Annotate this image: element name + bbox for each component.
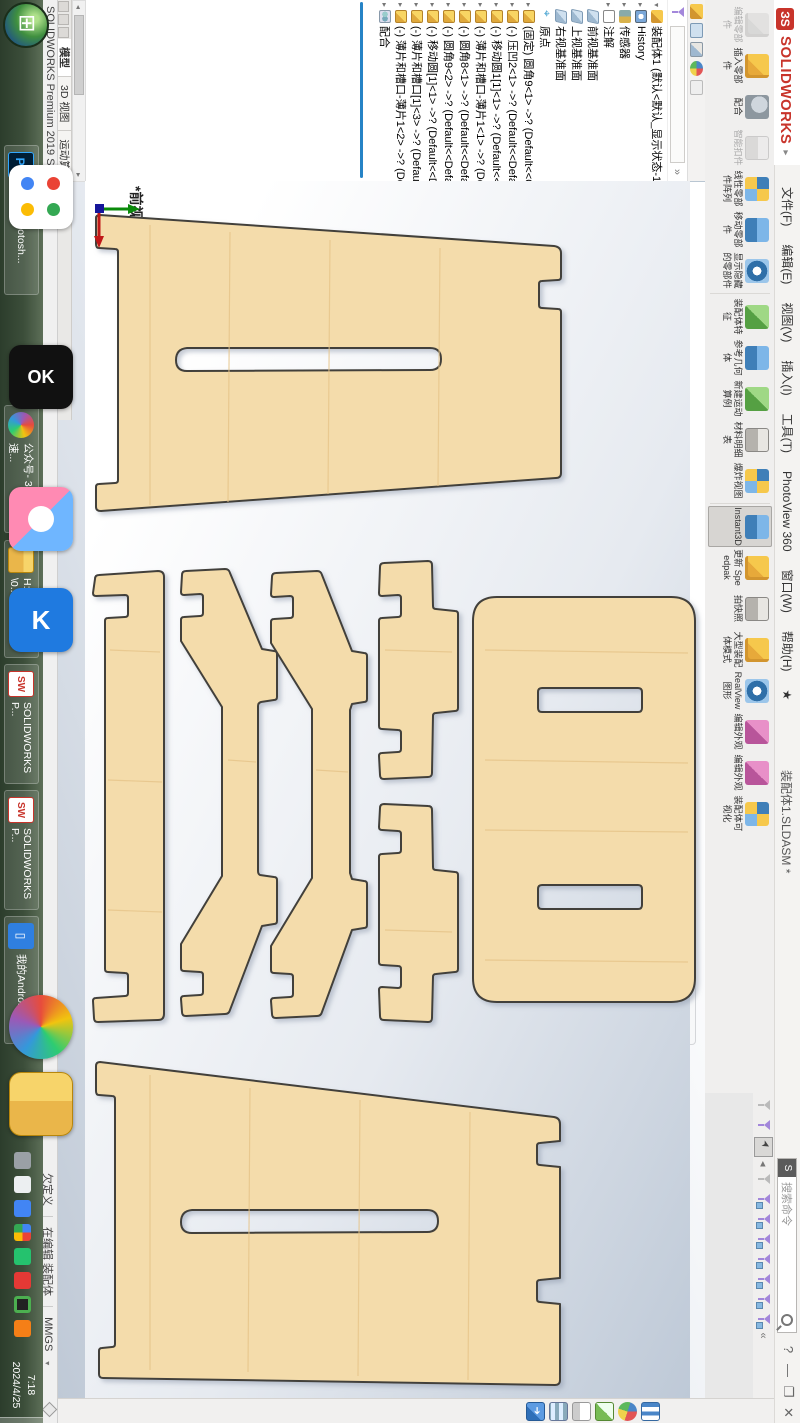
rollback-bar[interactable]	[360, 2, 363, 178]
solidworks-logo[interactable]: ЗS SOLIDWORKS ▸	[774, 0, 800, 165]
edit-appearance-viewport-icon[interactable]	[674, 890, 692, 910]
edit-appearance-button[interactable]: 编辑外观	[708, 711, 772, 752]
units-caret-icon[interactable]: ▾	[44, 1361, 53, 1365]
filter-collapse-icon[interactable]: «	[758, 1331, 770, 1341]
menu-view[interactable]: 视图(V)	[774, 293, 800, 351]
scroll-right-icon[interactable]: ▸	[75, 169, 84, 181]
toolbar-separator	[710, 503, 770, 504]
apply-scene-icon[interactable]	[674, 915, 692, 935]
status-tag-icon[interactable]	[42, 1402, 58, 1418]
tree-item-component[interactable]: ▸(-) 移动圆[1]<1> ->? (Default<<Def	[425, 0, 441, 181]
update-speedpak-button[interactable]: 更新 Speedpak	[708, 547, 772, 588]
reference-geometry-button[interactable]: 参考几何体	[708, 337, 772, 378]
clock-time: 7:18	[23, 1352, 38, 1418]
tray-sogou-icon[interactable]	[14, 1200, 31, 1217]
edit-appearance-icon	[745, 720, 769, 744]
tree-filter-input[interactable]	[670, 26, 685, 163]
menu-help[interactable]: 帮助(H)	[774, 622, 800, 681]
menu-photoview[interactable]: PhotoView 360	[774, 462, 800, 561]
assembly-visualization-icon	[745, 802, 769, 826]
component-icon	[411, 10, 423, 23]
taskbar-button-solidworks-1[interactable]: SW SOLIDWORKS P...	[4, 664, 39, 784]
close-button[interactable]: ✕	[774, 1402, 800, 1423]
filter-faces-icon[interactable]	[755, 1231, 772, 1249]
tray-green-icon[interactable]	[14, 1248, 31, 1265]
realview-graphics-icon	[745, 679, 769, 703]
edit-component-button[interactable]: 编辑零部件	[708, 4, 772, 45]
task-pane	[58, 1398, 774, 1423]
update-speedpak-icon	[745, 556, 769, 580]
zoom-to-fit-icon[interactable]	[674, 654, 692, 674]
feature-tree: ▾装配体1 (默认<默认_显示状态-1>) ▸History ▸传感器 ▸注解 …	[377, 0, 667, 181]
solidworks-app-icon: SW	[9, 671, 35, 697]
plane-icon	[555, 9, 567, 25]
selection-filter-toolbar: ◂ «	[753, 1093, 774, 1423]
dynamic-annotation-icon[interactable]	[674, 754, 692, 774]
dock-app-icon-k[interactable]: K	[9, 588, 73, 652]
feature-manager-panel: » ▾装配体1 (默认<默认_显示状态-1>) ▸History ▸传感器 ▸注…	[58, 0, 705, 182]
splitter-handle[interactable]	[58, 27, 69, 38]
show-hidden-components-button[interactable]: 显示隐藏的零部件	[708, 250, 772, 291]
select-cursor-button[interactable]	[754, 1137, 773, 1157]
filter-edges-icon[interactable]	[755, 1211, 772, 1229]
featuremanager-tree-tab-icon[interactable]	[690, 4, 703, 19]
tray-red-icon[interactable]	[14, 1272, 31, 1289]
plane-icon	[571, 9, 583, 25]
appearances-scenes-icon[interactable]	[618, 1402, 637, 1421]
reference-geometry-icon	[745, 346, 769, 370]
tray-files-icon[interactable]	[14, 1224, 31, 1241]
annotations-icon	[603, 10, 615, 23]
edit-component-icon	[745, 13, 769, 37]
window-controls: ? — ❐ ✕	[774, 1339, 800, 1423]
heads-up-view-toolbar: ▾ ▾ ▾ ▾ ▾ ▾	[670, 645, 696, 1045]
filter-solid-icon[interactable]	[755, 1271, 772, 1289]
filter-plane-icon[interactable]	[755, 1311, 772, 1329]
tree-item-history[interactable]: ▸History	[633, 0, 649, 181]
move-component-button[interactable]: 移动零部件	[708, 209, 772, 250]
splitter-handle[interactable]	[58, 1, 69, 12]
tree-item-sensors[interactable]: ▸传感器	[617, 0, 633, 181]
tab-3d-views[interactable]: 3D 视图	[57, 77, 71, 131]
document-title: 装配体1.SLDASM *	[778, 770, 795, 873]
edit-appearance-icon	[745, 761, 769, 785]
tree-item-component[interactable]: ▸(-) 圆角8<1> ->? (Default<<Defa	[457, 0, 473, 181]
tree-item-mates[interactable]: ▸配合	[377, 0, 393, 181]
menu-collapse-icon[interactable]: ▸	[780, 150, 791, 155]
start-button[interactable]	[3, 2, 49, 48]
realview-graphics-button[interactable]: RealView 图形	[708, 670, 772, 711]
system-tray	[14, 1152, 31, 1337]
mates-icon	[379, 10, 391, 23]
instant3d-icon	[745, 515, 769, 539]
help-button[interactable]: ?	[774, 1339, 800, 1360]
filter-vertices-icon[interactable]	[755, 1191, 772, 1209]
filter-surface-icon[interactable]	[755, 1251, 772, 1269]
linear-pattern-icon	[745, 177, 769, 201]
dock-app-icon-folder[interactable]	[9, 1072, 73, 1136]
search-icon[interactable]	[781, 1314, 793, 1326]
hide-show-items-icon[interactable]	[674, 856, 692, 876]
property-manager-tab-icon[interactable]	[690, 23, 703, 38]
previous-view-icon[interactable]	[674, 704, 692, 724]
view-settings-icon[interactable]	[674, 949, 692, 969]
phone-icon	[9, 923, 35, 949]
tree-item-component[interactable]: ▸(-) 圆角9<2> ->? (Default<<Defa	[441, 0, 457, 181]
tree-item-front-plane[interactable]: 前视基准面	[585, 0, 601, 181]
tree-horizontal-scrollbar[interactable]: ◂ ▸	[72, 0, 86, 182]
tree-item-origin[interactable]: 原点	[537, 0, 553, 181]
scrollbar-thumb[interactable]	[74, 15, 84, 95]
filter-toggle-icon[interactable]	[755, 1097, 772, 1115]
insert-components-icon	[745, 54, 769, 78]
take-snapshot-icon	[745, 597, 769, 621]
origin-icon	[539, 10, 551, 23]
menu-file[interactable]: 文件(F)	[774, 178, 800, 235]
title-bar: ЗS SOLIDWORKS ▸ 文件(F) 编辑(E) 视图(V) 插入(I) …	[774, 0, 800, 1423]
taskbar-clock[interactable]: 7:18 2024/4/25	[8, 1352, 38, 1418]
smart-fasteners-icon	[745, 136, 769, 160]
tree-root[interactable]: ▾装配体1 (默认<默认_显示状态-1>)	[649, 0, 665, 181]
screen: ЗS SOLIDWORKS ▸ 文件(F) 编辑(E) 视图(V) 插入(I) …	[0, 0, 800, 1423]
tree-item-component[interactable]: ▸(固定) 圆角9<1> ->? (Default<<C	[521, 0, 537, 181]
exploded-view-icon	[745, 469, 769, 493]
tree-filter-row: »	[667, 0, 687, 181]
view-orientation-icon[interactable]	[674, 788, 692, 808]
component-icon	[507, 10, 519, 23]
ds-logo-icon: ЗS	[777, 8, 795, 30]
tray-record-icon[interactable]	[14, 1296, 31, 1313]
dock-app-icon-360[interactable]	[9, 995, 73, 1059]
component-icon	[395, 10, 407, 23]
menu-insert[interactable]: 插入(I)	[774, 351, 800, 404]
display-manager-tab-icon[interactable]	[690, 61, 703, 76]
instant3d-button[interactable]: Instant3D	[708, 506, 772, 547]
file-explorer-icon[interactable]	[572, 1402, 591, 1421]
splitter-handle[interactable]	[58, 14, 69, 25]
smart-fasteners-button[interactable]: 智能扣件	[708, 127, 772, 168]
plane-icon	[587, 9, 599, 25]
search-scope-icon[interactable]: S	[778, 1159, 796, 1177]
tray-uparrow-icon[interactable]	[14, 1176, 31, 1193]
large-assembly-mode-button[interactable]: 大型装配体模式	[708, 629, 772, 670]
tab-model[interactable]: 模型	[57, 39, 71, 77]
feature-manager-tab-icons	[687, 0, 705, 181]
rotated-desktop: ЗS SOLIDWORKS ▸ 文件(F) 编辑(E) 视图(V) 插入(I) …	[0, 0, 800, 1423]
menu-window[interactable]: 窗口(W)	[774, 561, 800, 622]
command-search[interactable]: S 搜索命令	[777, 1158, 797, 1333]
section-view-icon[interactable]	[674, 729, 692, 749]
sensors-icon	[619, 10, 631, 23]
view-palette-icon[interactable]	[595, 1402, 614, 1421]
scroll-left-icon[interactable]: ◂	[75, 1, 84, 13]
mate-paperclip-icon	[745, 95, 769, 119]
tree-item-top-plane[interactable]: 上视基准面	[569, 0, 585, 181]
zoom-to-area-icon[interactable]	[674, 679, 692, 699]
insert-components-button[interactable]: 插入零部件	[708, 45, 772, 86]
mate-button[interactable]: 配合	[708, 86, 772, 127]
exploded-view-button[interactable]: 爆炸视图	[708, 460, 772, 501]
component-icon	[459, 10, 471, 23]
toolbar-separator	[710, 293, 770, 294]
move-component-icon	[745, 218, 769, 242]
menu-edit[interactable]: 编辑(E)	[774, 235, 800, 293]
panel-pin-icon[interactable]	[690, 80, 703, 95]
dock-app-icon-photos[interactable]	[9, 487, 73, 551]
search-placeholder: 搜索命令	[779, 1177, 795, 1314]
component-icon	[443, 10, 455, 23]
minimize-button[interactable]: —	[774, 1360, 800, 1381]
large-assembly-mode-icon	[745, 638, 769, 662]
edit-appearance-button-2[interactable]: 编辑外观	[708, 752, 772, 793]
display-style-icon[interactable]	[674, 822, 692, 842]
design-library-icon[interactable]	[549, 1402, 568, 1421]
tree-item-right-plane[interactable]: 右视基准面	[553, 0, 569, 181]
tree-filter-expand-icon[interactable]: »	[672, 167, 684, 177]
status-units[interactable]: MMGS	[42, 1317, 54, 1351]
configuration-manager-tab-icon[interactable]	[690, 42, 703, 57]
bill-of-materials-button[interactable]: 材料明细表	[708, 419, 772, 460]
taskbar-button-solidworks-2[interactable]: SW SOLIDWORKS P...	[4, 790, 39, 910]
new-motion-study-icon	[745, 387, 769, 411]
component-icon	[491, 10, 503, 23]
component-icon	[475, 10, 487, 23]
tree-item-annotations[interactable]: ▸注解	[601, 0, 617, 181]
dock-app-icon-ok[interactable]: OK	[9, 345, 73, 409]
menu-pin-icon[interactable]: ★	[774, 681, 800, 710]
clock-date: 2024/4/25	[8, 1352, 23, 1418]
new-motion-study-button[interactable]: 新建运动算例	[708, 378, 772, 419]
bill-of-materials-icon	[745, 428, 769, 452]
linear-pattern-button[interactable]: 线性零部件阵列	[708, 168, 772, 209]
tree-item-component[interactable]: ▸(-) 薄片和槽口-薄片1<1> ->? (Def	[473, 0, 489, 181]
tree-item-component[interactable]: ▸(-) 薄片和槽口[1]<3> ->? (Default<	[409, 0, 425, 181]
filter-axis-icon[interactable]	[755, 1291, 772, 1309]
custom-properties-icon[interactable]	[641, 1402, 660, 1421]
assembly-visualization-button[interactable]: 装配体可视化	[708, 793, 772, 834]
show-hidden-icon	[745, 259, 769, 283]
component-icon	[523, 10, 535, 23]
tree-filter-funnel-icon[interactable]	[669, 4, 686, 22]
assembly-icon	[651, 10, 663, 23]
menu-tools[interactable]: 工具(T)	[774, 405, 800, 462]
assembly-features-icon	[745, 305, 769, 329]
assembly-features-button[interactable]: 装配体特征	[708, 296, 772, 337]
show-desktop-button[interactable]	[0, 1417, 43, 1423]
solidworks-app-icon: SW	[9, 797, 35, 823]
take-snapshot-button[interactable]: 拍快照	[708, 588, 772, 629]
filter-clear-icon[interactable]	[755, 1117, 772, 1135]
360-browser-icon	[9, 412, 35, 438]
command-manager: 编辑零部件 插入零部件 配合 智能扣件 线性零部件阵列 移动零部件 显示隐藏的零…	[705, 0, 774, 1093]
solidworks-resources-icon[interactable]	[526, 1402, 545, 1421]
filter-off-icon[interactable]	[755, 1171, 772, 1189]
tree-item-component[interactable]: ▸(-) 压凹2<1> ->? (Default<<Defa	[505, 0, 521, 181]
component-icon	[427, 10, 439, 23]
tray-laptop-icon[interactable]	[14, 1152, 31, 1169]
tree-item-component[interactable]: ▸(-) 移动圆1[1]<1> ->? (Default<<	[489, 0, 505, 181]
select-dropdown-icon[interactable]: ◂	[757, 1159, 770, 1169]
graphics-viewport[interactable]	[58, 182, 705, 1398]
tree-item-component[interactable]: ▸(-) 薄片和槽口-薄片1<2> ->? (Def	[393, 0, 409, 181]
menu-bar: 文件(F) 编辑(E) 视图(V) 插入(I) 工具(T) PhotoView …	[774, 178, 800, 709]
tray-orange-icon[interactable]	[14, 1320, 31, 1337]
dock-app-icon-dots[interactable]	[9, 165, 73, 229]
restore-button[interactable]: ❐	[774, 1381, 800, 1402]
solidworks-wordmark: SOLIDWORKS	[777, 36, 794, 144]
history-icon	[635, 10, 647, 23]
